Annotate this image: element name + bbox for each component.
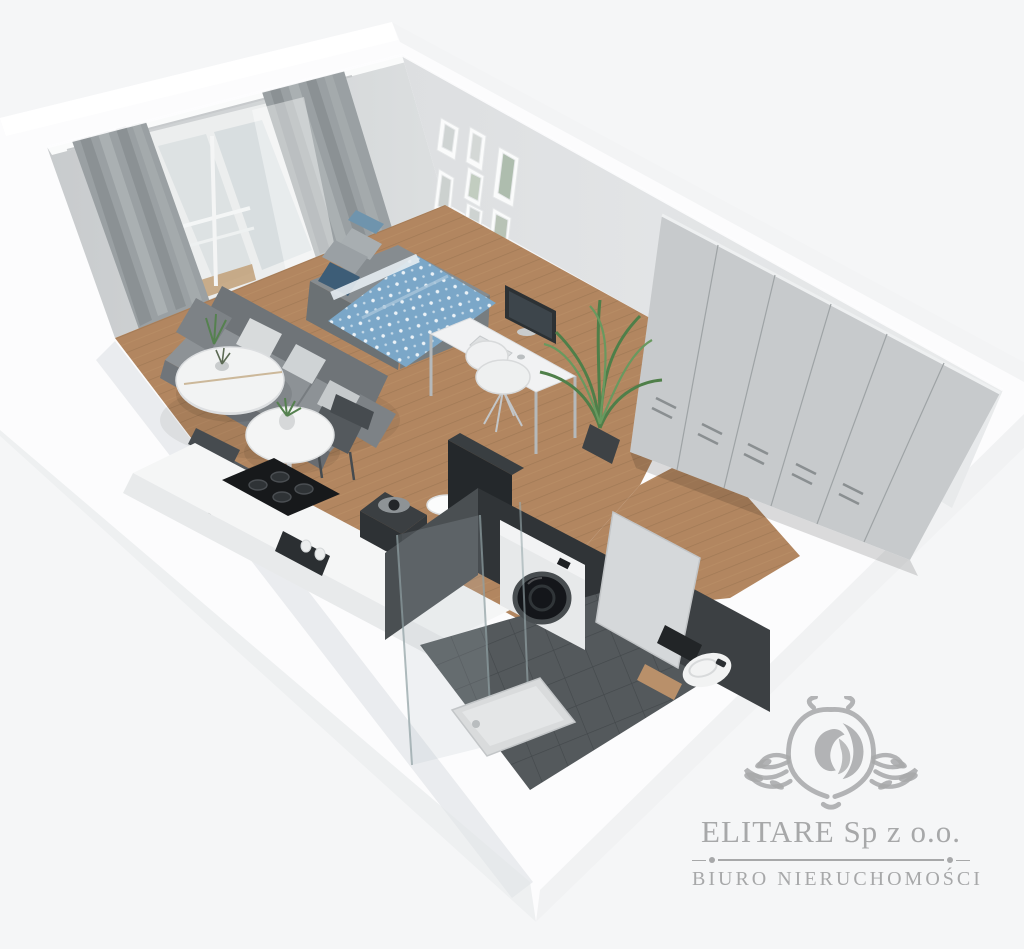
jar (301, 540, 311, 552)
watermark-divider (692, 857, 970, 863)
watermark: ELITARE Sp z o.o. BIURO NIERUCHOMOŚCI (692, 696, 970, 891)
company-name: ELITARE Sp z o.o. (692, 814, 970, 850)
drain (472, 720, 480, 728)
lion-head (815, 729, 845, 771)
lion-crest-icon (733, 696, 929, 812)
floorplan-render-page: ELITARE Sp z o.o. BIURO NIERUCHOMOŚCI (0, 0, 1024, 949)
jar (315, 548, 325, 560)
company-tagline: BIURO NIERUCHOMOŚCI (692, 868, 970, 891)
mouse (517, 355, 525, 360)
